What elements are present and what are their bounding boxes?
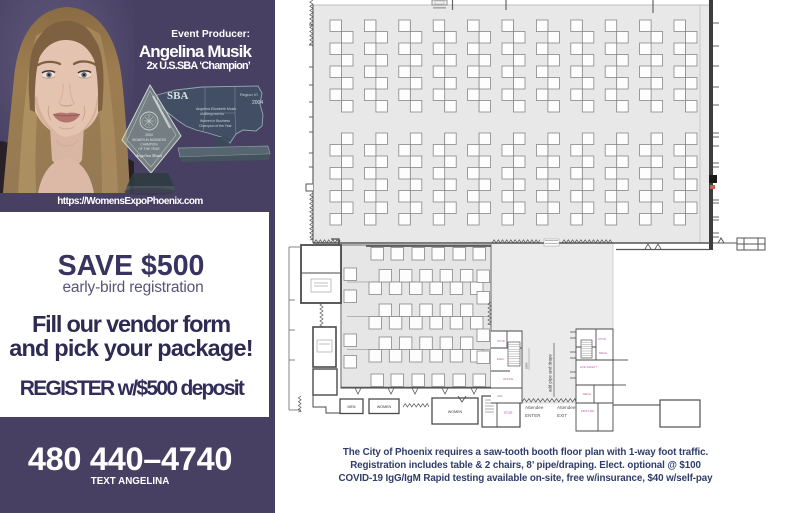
- svg-text:ELEC: ELEC: [497, 357, 504, 361]
- svg-text:Attendee: Attendee: [525, 405, 544, 410]
- svg-text:STOR: STOR: [497, 339, 505, 343]
- svg-text:Attendee: Attendee: [557, 405, 576, 410]
- svg-text:STOR: STOR: [504, 411, 513, 415]
- svg-text:WOMEN: WOMEN: [377, 405, 392, 409]
- svg-text:WOMEN: WOMEN: [448, 410, 463, 414]
- svg-text:FIRST AID: FIRST AID: [581, 409, 594, 413]
- svg-text:MECH: MECH: [599, 351, 607, 355]
- svg-text:EXIT: EXIT: [557, 413, 567, 418]
- svg-text:MEN: MEN: [348, 405, 356, 409]
- svg-text:aisle: aisle: [525, 362, 529, 369]
- svg-text:ENTER: ENTER: [525, 413, 541, 418]
- svg-text:OFFICE: OFFICE: [503, 377, 513, 381]
- svg-text:STOR: STOR: [598, 337, 606, 341]
- svg-text:JAN: JAN: [497, 394, 502, 398]
- svg-text:LIFE SAFETY: LIFE SAFETY: [580, 365, 598, 369]
- svg-text:MECH: MECH: [583, 392, 591, 396]
- svg-text:add pipe and drape: add pipe and drape: [548, 354, 553, 392]
